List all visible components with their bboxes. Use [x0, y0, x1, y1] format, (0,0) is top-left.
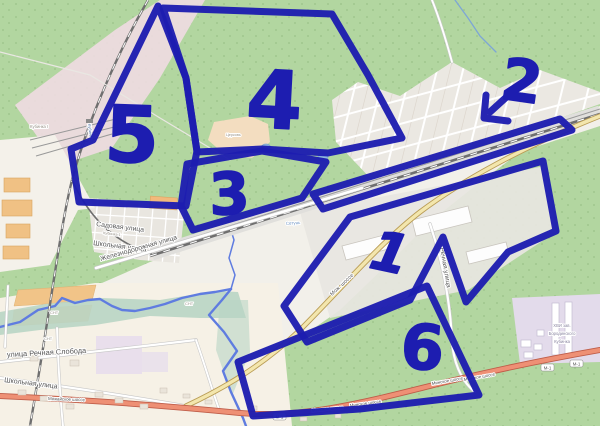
annotation-digit-4: 4	[244, 53, 304, 149]
annotation-digit-6: 6	[398, 310, 446, 386]
town-allotment-lavender	[96, 336, 142, 374]
museum-label-line3: Кубинка	[554, 339, 571, 344]
snt-label-3: СНТ	[44, 336, 53, 341]
annotation-digit-5: 5	[103, 90, 160, 182]
town-allotment-lavender-2	[142, 352, 168, 372]
ref-shield-m1-3-text: М-1	[573, 362, 581, 367]
church-label: Церковь	[226, 133, 241, 137]
snt-label-2: СНТ	[185, 301, 194, 306]
annotated-map-screenshot: Садовая улица Школьная улица Кубинка-1 Ж…	[0, 0, 600, 426]
ref-shield-m1-3: М-1	[570, 360, 583, 367]
snt-label-1: СНТ	[50, 310, 59, 315]
station-building	[86, 119, 93, 123]
ref-shield-m1-2-text: М-1	[544, 366, 552, 371]
river-label: Сетунь	[286, 220, 301, 226]
map-canvas: Садовая улица Школьная улица Кубинка-1 Ж…	[0, 0, 600, 426]
museum-label-line2: Бородинского	[549, 331, 576, 336]
ref-shield-m1-2: М-1	[541, 364, 554, 371]
museum-label-line1: ХВИ зав.	[553, 323, 570, 328]
station-label: Кубинка I	[30, 124, 48, 129]
annotation-digit-3: 3	[208, 159, 251, 228]
